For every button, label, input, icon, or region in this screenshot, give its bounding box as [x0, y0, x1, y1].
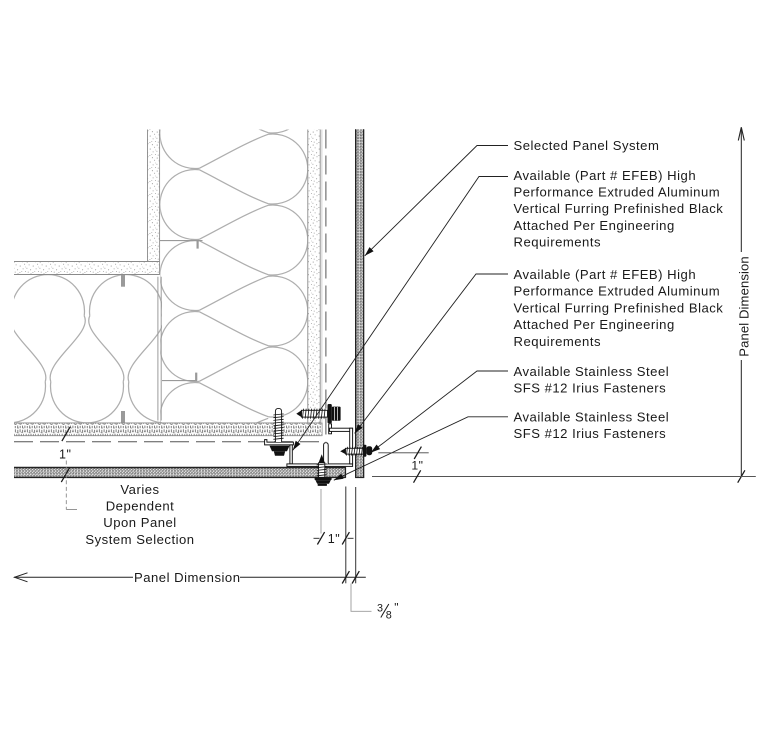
- svg-text:Attached Per Engineering: Attached Per Engineering: [514, 317, 675, 332]
- svg-text:1": 1": [411, 458, 423, 472]
- svg-text:Varies: Varies: [120, 482, 159, 497]
- svg-text:Vertical Furring Prefinished B: Vertical Furring Prefinished Black: [514, 201, 724, 216]
- svg-text:Performance Extruded Aluminum: Performance Extruded Aluminum: [514, 185, 721, 200]
- svg-text:Vertical Furring Prefinished B: Vertical Furring Prefinished Black: [514, 300, 724, 315]
- svg-text:": ": [394, 601, 399, 615]
- svg-text:Requirements: Requirements: [514, 334, 602, 349]
- svg-text:System Selection: System Selection: [85, 532, 194, 547]
- svg-text:SFS #12 Irius Fasteners: SFS #12 Irius Fasteners: [514, 426, 667, 441]
- svg-text:Performance Extruded Aluminum: Performance Extruded Aluminum: [514, 284, 721, 299]
- svg-text:Selected Panel System: Selected Panel System: [514, 138, 660, 153]
- svg-text:Upon Panel: Upon Panel: [103, 515, 176, 530]
- svg-text:8: 8: [386, 610, 393, 622]
- svg-text:Requirements: Requirements: [514, 234, 602, 249]
- svg-text:Available Stainless Steel: Available Stainless Steel: [514, 409, 670, 424]
- svg-text:Available (Part # EFEB) High: Available (Part # EFEB) High: [514, 267, 697, 282]
- svg-text:3: 3: [377, 603, 384, 615]
- svg-text:1": 1": [328, 532, 340, 546]
- svg-text:Panel Dimension: Panel Dimension: [737, 256, 752, 356]
- svg-text:SFS #12 Irius Fasteners: SFS #12 Irius Fasteners: [514, 381, 667, 396]
- svg-text:Attached Per Engineering: Attached Per Engineering: [514, 218, 675, 233]
- svg-text:Dependent: Dependent: [106, 499, 175, 514]
- svg-text:Available (Part # EFEB) High: Available (Part # EFEB) High: [514, 168, 697, 183]
- svg-text:Panel Dimension: Panel Dimension: [134, 570, 240, 585]
- svg-text:Available Stainless Steel: Available Stainless Steel: [514, 364, 670, 379]
- svg-text:1": 1": [59, 448, 71, 462]
